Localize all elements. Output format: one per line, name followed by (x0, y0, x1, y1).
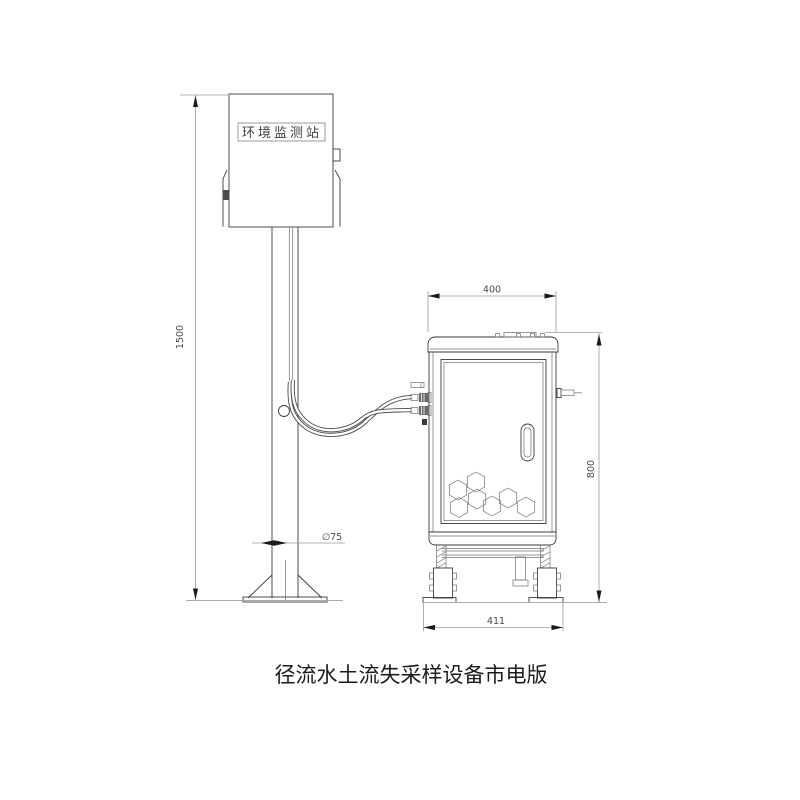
pole-base-plate (243, 597, 327, 602)
arrowhead-left (261, 540, 274, 546)
right-gusset (298, 575, 322, 598)
hexagon (450, 498, 467, 518)
dim-text-400: 400 (483, 285, 501, 296)
gland-neck (411, 395, 418, 401)
dim-text-75: ∅75 (322, 532, 342, 543)
bolt-tab (534, 585, 538, 591)
connection-cables (290, 380, 412, 435)
hexagon (449, 480, 466, 500)
hexagon (467, 472, 484, 492)
arrowhead-left (428, 293, 440, 298)
dim-text-411: 411 (487, 616, 505, 627)
bolt-tab (453, 585, 457, 591)
outlet-flange (557, 389, 561, 398)
bolt-tab (453, 573, 457, 579)
outlet-barrel (561, 390, 574, 396)
arrowhead-right (545, 293, 557, 298)
inlet-fittings (411, 383, 431, 426)
dim-cabinet-height: 800 (545, 333, 602, 603)
arrowhead-down (597, 591, 602, 603)
left-anchor-box (434, 568, 453, 598)
lid-tick (517, 334, 521, 338)
gland-neck (411, 408, 418, 414)
dim-pole-diameter: ∅75 (252, 532, 345, 546)
leg-hatch (541, 558, 550, 563)
wall-plug (422, 419, 427, 425)
arrowhead-right (552, 625, 564, 630)
pole-hole (279, 406, 290, 417)
leg-hatch (541, 552, 550, 557)
cabinet-plinth (429, 532, 556, 545)
bolt-tab (430, 573, 434, 579)
bolt-tab (534, 573, 538, 579)
arrowhead-down (193, 589, 198, 601)
arrowhead-right (274, 540, 287, 546)
bolt-tab (430, 585, 434, 591)
arrowhead-left (424, 625, 436, 630)
right-wing (335, 170, 340, 227)
drawing-canvas: 环境监测站 (0, 0, 800, 800)
left-wing-latch (224, 190, 229, 200)
cable-tube-lower (293, 380, 412, 430)
monitoring-box (229, 94, 333, 227)
dim-base-width: 411 (424, 603, 564, 631)
cable-gland-lower (419, 406, 428, 415)
leg-hatch (437, 558, 446, 563)
leg-hatch (541, 563, 550, 568)
lid-tick (496, 334, 500, 338)
cabinet-body (429, 352, 556, 532)
left-gusset (248, 575, 272, 598)
right-anchor-box (538, 568, 557, 598)
pole-station: 环境监测站 (186, 94, 343, 602)
dimension-annotations: 1500 ∅75 400 800 (175, 95, 602, 631)
leg-hatch (437, 552, 446, 557)
inlet-nipple (411, 383, 424, 388)
underframe-rails (442, 549, 544, 558)
box-side-tab (333, 149, 340, 161)
bolt-tab (557, 573, 561, 579)
bolt-tab (557, 585, 561, 591)
door-handle (521, 424, 534, 461)
cable-gland-upper (419, 393, 428, 402)
leg-hatch (437, 563, 446, 568)
sampling-cabinet (411, 333, 607, 603)
outlet-pipe (557, 389, 582, 398)
arrowhead-up (193, 96, 198, 108)
lid-tick (541, 334, 545, 338)
honeycomb-pattern (449, 472, 534, 518)
lid-tick (531, 334, 535, 338)
drain-bracket-foot (513, 580, 528, 586)
station-nameplate-text: 环境监测站 (242, 126, 322, 141)
hexagon (499, 488, 516, 508)
cabinet-lid (428, 337, 558, 352)
dim-text-800: 800 (586, 460, 597, 478)
door-handle-grip (524, 428, 531, 457)
dim-pole-height: 1500 (175, 95, 228, 600)
drawing-caption: 径流水土流失采样设备市电版 (275, 663, 548, 687)
drain-bracket (516, 557, 526, 580)
dim-text-1500: 1500 (175, 325, 186, 349)
gland-flange (428, 406, 431, 416)
technical-drawing: 环境监测站 (0, 0, 800, 800)
dim-cabinet-width: 400 (428, 285, 556, 333)
arrowhead-up (597, 334, 602, 346)
gland-flange (428, 393, 431, 403)
hexagon (517, 497, 534, 517)
